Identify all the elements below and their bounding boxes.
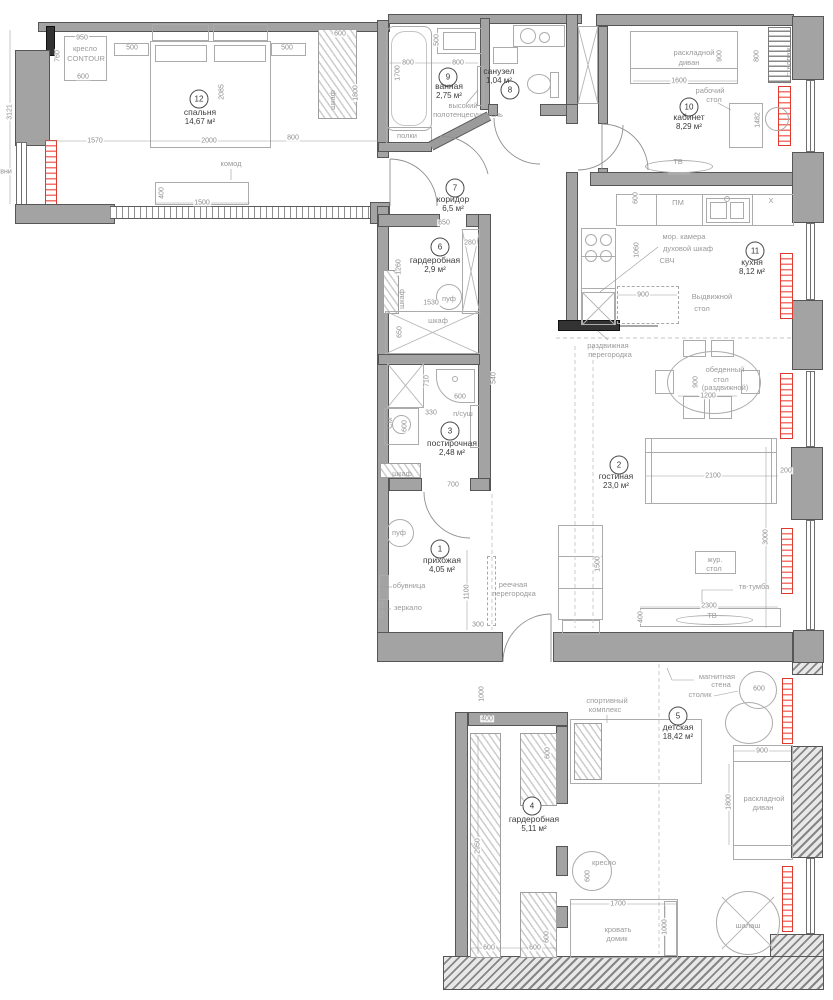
room-area: 18,42 м² — [663, 732, 694, 742]
dimension-label: 600 — [482, 944, 496, 951]
wall — [15, 50, 50, 146]
dimension-label: 600 — [333, 30, 347, 37]
furniture-label: СВЧ — [658, 257, 675, 265]
dimension-label: 330 — [424, 409, 438, 416]
room-area: 8,29 м² — [673, 122, 704, 132]
furniture-label: ПМ — [671, 199, 685, 207]
furniture-label: домик — [605, 935, 628, 943]
dimension-label: 1530 — [422, 299, 440, 306]
tv-unit-small — [562, 620, 600, 635]
sofa-back-line — [645, 452, 777, 453]
radiator — [781, 528, 793, 594]
mirror — [379, 602, 383, 618]
counter-divider — [656, 194, 657, 226]
kitchen-sink-bowl — [710, 202, 727, 219]
furniture-label: кровать — [604, 926, 633, 934]
furniture-label: комод — [219, 160, 242, 168]
dimension-label: 2100 — [704, 472, 722, 479]
furniture-label: пуф — [441, 295, 457, 303]
furniture-label: раскладной — [743, 795, 786, 803]
dimension-label: 1700 — [394, 64, 401, 82]
furniture-label: (раздвижной) — [701, 384, 750, 392]
dimension-label: 1000 — [661, 918, 668, 936]
wardrobe4-topright — [520, 733, 557, 806]
wall — [566, 14, 578, 116]
dimension-label: 760 — [54, 49, 61, 63]
office-chair — [765, 107, 789, 131]
room-area: 2,75 м² — [435, 91, 463, 101]
furniture-label: стол — [705, 565, 722, 573]
window — [16, 142, 27, 208]
floor-plan: 1прихожая4,05 м²2гостиная23,0 м²3постиро… — [0, 0, 833, 1000]
wall — [792, 16, 824, 80]
furniture-label: ТВ — [672, 158, 684, 166]
dimension-label: 800 — [753, 49, 760, 63]
furniture-label: раздвижная — [586, 342, 629, 350]
dimension-label: 600 — [76, 73, 90, 80]
furniture-label: перегородка — [491, 590, 537, 598]
laundry-tap — [452, 376, 458, 382]
beanbag-chair — [725, 702, 773, 744]
dimension-label: 1570 — [86, 137, 104, 144]
wall — [556, 846, 568, 876]
wall — [792, 152, 824, 223]
room-label-6: гардеробная2,9 м² — [410, 255, 460, 275]
wall — [566, 104, 578, 124]
furniture-label: кресло — [591, 859, 617, 867]
dimension-label: 900 — [755, 747, 769, 754]
kids-armchair — [572, 851, 612, 891]
furniture-label: рабочий — [695, 87, 726, 95]
room-name: ванная — [435, 81, 463, 91]
furniture-label: шалаш — [735, 922, 762, 930]
toilet-bowl — [527, 74, 551, 94]
dimension-label: 2950 — [474, 837, 481, 855]
kitchen-cabinet-x — [582, 292, 615, 325]
room-label-12: спальня14,67 м² — [184, 107, 216, 127]
dimension-label: 1800 — [725, 793, 732, 811]
dimension-label: 800 — [286, 134, 300, 141]
room-name: спальня — [184, 107, 216, 117]
window-band — [110, 206, 390, 219]
dimension-label: 900 — [692, 375, 699, 389]
wall — [598, 26, 608, 124]
furniture-label: полотенцесушитель — [432, 111, 504, 119]
wall — [378, 214, 440, 227]
furniture-label: стеллаж — [785, 47, 793, 78]
furniture-label: обеденный — [705, 366, 746, 374]
wall — [15, 204, 115, 224]
room-name: гардеробная — [509, 814, 559, 824]
wall — [455, 712, 468, 964]
room-area: 23,0 м² — [599, 481, 634, 491]
room-number-4: 4 — [523, 797, 542, 816]
dimension-label: вни — [0, 168, 13, 175]
dimension-label: 1200 — [699, 392, 717, 399]
pillow — [214, 45, 266, 62]
room-name: детская — [663, 722, 694, 732]
room-area: 5,11 м² — [509, 824, 559, 834]
furniture-label: жур. — [706, 556, 723, 564]
dimension-label: 3121 — [6, 103, 13, 121]
sofa-armrest — [771, 438, 772, 504]
furniture-label: тв-тумба — [738, 583, 770, 591]
furniture-label: кресло — [72, 45, 98, 53]
room-label-1: прихожая4,05 м² — [423, 555, 461, 575]
tv-unit-shelf — [558, 588, 603, 589]
dimension-label: 500 — [433, 33, 440, 47]
bath-sink-basin — [443, 32, 476, 50]
wall — [377, 632, 503, 662]
dimension-label: 1600 — [670, 77, 688, 84]
wall — [791, 447, 823, 520]
radiator — [782, 866, 793, 932]
dimension-label: 2000 — [200, 137, 218, 144]
wall — [470, 478, 490, 491]
kids-sofa-line — [733, 761, 793, 762]
stove-burner — [600, 234, 612, 246]
office-sofa-line — [631, 68, 737, 69]
faucet — [724, 196, 730, 202]
headboard-shelf — [213, 24, 268, 41]
dimension-label: 950 — [75, 34, 89, 41]
furniture-label: столик — [688, 691, 713, 699]
furniture-label: шкаф — [427, 317, 449, 325]
headboard-shelf — [152, 24, 209, 41]
radiator — [45, 140, 57, 208]
furniture-label: шкаф — [329, 89, 337, 111]
window — [806, 223, 815, 300]
dimension-label: 3000 — [762, 528, 769, 546]
wall — [389, 478, 422, 491]
stove-burner — [585, 250, 597, 262]
dimension-label: 400 — [480, 715, 494, 722]
furniture-label: CONTOUR — [66, 55, 106, 63]
dimension-label: 1800 — [352, 84, 359, 102]
dimension-label: 800 — [451, 59, 465, 66]
kitchen-sink-drain — [730, 202, 744, 219]
room-label-11: кухня8,12 м² — [739, 257, 765, 277]
room-name: гостиная — [599, 471, 634, 481]
dimension-label: 600 — [528, 944, 542, 951]
wc-sink-small — [539, 32, 550, 43]
dimension-label: 500 — [280, 44, 294, 51]
furniture-label: высокий — [447, 102, 478, 110]
furniture-label: Х — [767, 197, 774, 205]
dimension-label: 1260 — [395, 258, 402, 276]
pillow — [155, 45, 207, 62]
furniture-label: зеркало — [393, 604, 423, 612]
toilet-tank — [550, 72, 559, 98]
dimension-label: 2085 — [218, 83, 225, 101]
room-area: 14,67 м² — [184, 117, 216, 127]
radiator — [780, 253, 793, 319]
room-area: 4,05 м² — [423, 565, 461, 575]
furniture-label: стол — [705, 96, 722, 104]
dimension-label: 300 — [471, 621, 485, 628]
dimension-label: 710 — [423, 374, 430, 388]
furniture-label: диван — [678, 59, 701, 67]
counter-divider — [702, 194, 703, 226]
sofa-armrest — [651, 438, 652, 504]
dining-chair — [683, 340, 706, 357]
dimension-label: 1500 — [594, 555, 601, 573]
dimension-label: 700 — [446, 481, 460, 488]
dimension-label: 1100 — [463, 583, 470, 600]
corridor-closet — [578, 26, 598, 104]
dining-chair — [655, 370, 674, 394]
column-divider — [581, 288, 616, 289]
room-area: 2,48 м² — [427, 448, 477, 458]
room-name: коридор — [437, 194, 469, 204]
furniture-label: шкаф — [398, 288, 406, 310]
furniture-label: диван — [752, 804, 775, 812]
room-name: кабинет — [673, 112, 704, 122]
dimension-label: 600 — [584, 869, 591, 883]
dimension-label: 900 — [636, 291, 650, 298]
laundry-cabinet-x — [387, 363, 424, 408]
room-name: кухня — [739, 257, 765, 267]
wardrobe-closet — [318, 29, 357, 119]
room-label-5: детская18,42 м² — [663, 722, 694, 742]
room-area: 1,04 м² — [483, 76, 514, 86]
dimension-label: 400 — [637, 610, 644, 624]
room-label-7: коридор6,5 м² — [437, 194, 469, 214]
room-label-4: гардеробная5,11 м² — [509, 814, 559, 834]
furniture-label: стол — [693, 305, 710, 313]
room-label-3: постирочная2,48 м² — [427, 438, 477, 458]
dimension-label: 1700 — [609, 900, 627, 907]
room-area: 2,9 м² — [410, 265, 460, 275]
room-label-8: санузел1,04 м² — [483, 66, 514, 86]
dimension-label: 1000 — [478, 685, 485, 703]
dimension-label: 600 — [752, 685, 766, 692]
living-sofa — [645, 438, 777, 504]
furniture-label: обувница — [392, 582, 427, 590]
furniture-label: пуф — [391, 529, 407, 537]
furniture-label: спортивный — [585, 697, 628, 705]
dimension-label: 600 — [544, 746, 551, 760]
sport-ladder — [574, 723, 602, 780]
wall — [556, 726, 568, 804]
window — [806, 371, 815, 447]
neighbor-wall-hatch — [791, 746, 823, 858]
furniture-label: Выдвижной — [691, 293, 733, 301]
dining-chair — [711, 340, 734, 357]
furniture-label: перегородка — [587, 351, 633, 359]
neighbor-wall-hatch — [792, 662, 823, 675]
wc-sink — [520, 28, 536, 44]
room-number-12: 12 — [190, 90, 209, 109]
dimension-label: 500 — [125, 44, 139, 51]
kids-sofa-line — [733, 845, 793, 846]
radiator — [780, 373, 793, 439]
room-area: 6,5 м² — [437, 204, 469, 214]
wall — [793, 630, 824, 663]
dimension-label: 1060 — [633, 241, 640, 259]
dimension-label: 650 — [396, 325, 403, 339]
dimension-label: 600 — [632, 191, 639, 205]
dimension-label: 650 — [437, 219, 451, 226]
dimension-label: 1500 — [193, 199, 211, 206]
furniture-label: шкаф — [391, 470, 413, 478]
wall — [566, 172, 578, 324]
furniture-label: СМ — [386, 416, 394, 430]
wall — [553, 632, 793, 662]
dimension-label: 600 — [543, 930, 550, 944]
dimension-label: 280 — [463, 239, 477, 246]
furniture-label: ТВ — [706, 612, 718, 620]
furniture-label: духовой шкаф — [662, 245, 714, 253]
radiator — [782, 678, 793, 744]
dimension-label: 600 — [401, 419, 408, 433]
office-tv-stand — [668, 172, 690, 175]
dimension-label: 400 — [158, 186, 165, 200]
dimension-label: 2300 — [700, 602, 718, 609]
window — [806, 520, 815, 630]
room-name: санузел — [483, 66, 514, 76]
furniture-label: п/суш — [452, 410, 474, 418]
room-name: гардеробная — [410, 255, 460, 265]
wc-cabinet — [493, 47, 518, 64]
wall — [792, 300, 823, 370]
furniture-label: полки — [396, 132, 418, 140]
room-name: постирочная — [427, 438, 477, 448]
furniture-label: комплекс — [588, 706, 622, 714]
shoe-cabinet — [379, 575, 389, 600]
furniture-label: мор. камера — [662, 233, 707, 241]
wall — [590, 172, 794, 186]
counter-divider — [752, 194, 753, 226]
room-label-2: гостиная23,0 м² — [599, 471, 634, 491]
stove-burner — [585, 234, 597, 246]
room-name: прихожая — [423, 555, 461, 565]
neighbor-wall-hatch — [443, 956, 824, 990]
room-label-10: кабинет8,29 м² — [673, 112, 704, 132]
wall — [596, 14, 794, 26]
dimension-label: 540 — [490, 371, 497, 385]
stove-burner — [600, 250, 612, 262]
dimension-label: 900 — [716, 49, 723, 63]
window — [806, 858, 815, 934]
dimension-label: 1482 — [754, 111, 761, 129]
dimension-label: 200 — [779, 467, 793, 474]
furniture-label: раскладной — [673, 49, 716, 57]
room-label-9: ванная2,75 м² — [435, 81, 463, 101]
dimension-label: 600 — [453, 393, 467, 400]
furniture-label: стена — [710, 681, 732, 689]
wall — [556, 906, 568, 928]
dimension-label: 800 — [401, 59, 415, 66]
room-area: 8,12 м² — [739, 267, 765, 277]
furniture-label: реечная — [498, 581, 529, 589]
room-number-6: 6 — [431, 238, 450, 257]
window — [806, 80, 815, 152]
